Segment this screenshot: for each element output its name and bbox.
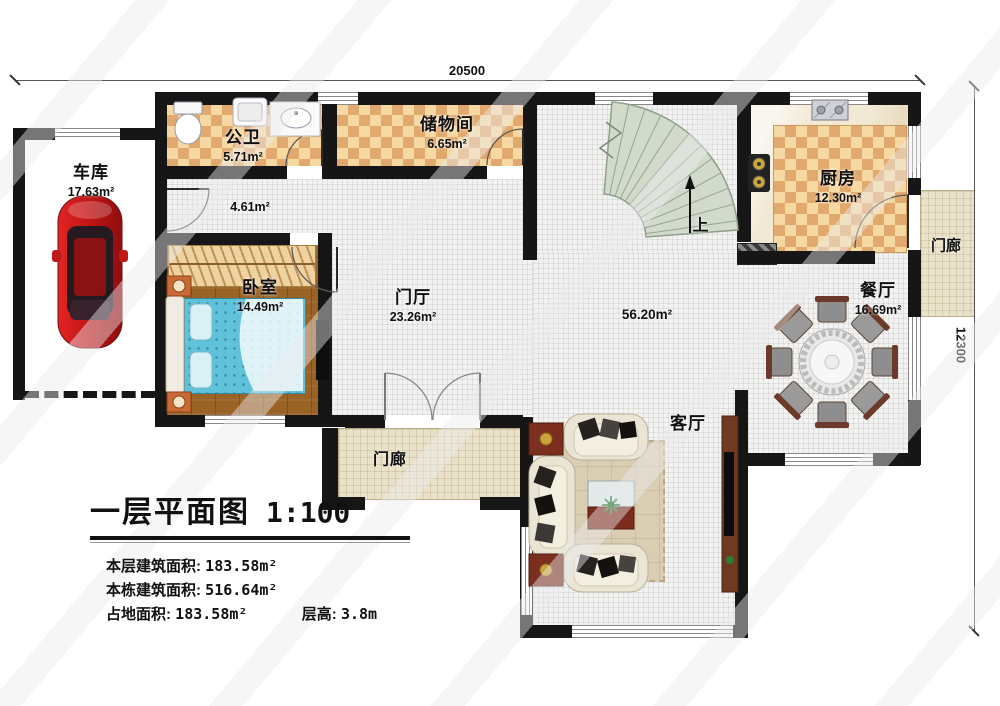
legend-stats: 本层建筑面积: 183.58m² 本栋建筑面积: 516.64m² 占地面积: … xyxy=(106,554,520,626)
dimension-top-value: 20500 xyxy=(449,63,485,78)
hall-area-label: 56.20m² xyxy=(622,306,672,324)
car xyxy=(52,196,128,348)
window-garage xyxy=(55,128,120,140)
window-kitchen-top xyxy=(790,92,868,105)
room-label-bathroom: 公卫 5.71m² xyxy=(223,127,263,165)
wall-garage-left xyxy=(13,128,25,400)
stat-row: 本栋建筑面积: 516.64m² xyxy=(106,578,520,602)
window-dining-right xyxy=(908,317,921,400)
living-rug xyxy=(561,440,665,582)
stat-row: 占地面积: 183.58m² 层高: 3.8m xyxy=(106,602,520,626)
room-label-living: 客厅 xyxy=(670,413,706,435)
window-bedroom xyxy=(205,415,285,427)
window-kitchen-right xyxy=(908,126,921,178)
stat-row: 本层建筑面积: 183.58m² xyxy=(106,554,520,578)
dimension-line-right xyxy=(974,86,975,632)
window-top-2 xyxy=(595,92,653,105)
plan-scale: 1:100 xyxy=(266,496,350,529)
wall-bath-bottom xyxy=(155,166,287,179)
title-underline xyxy=(90,536,410,540)
wall-living-right xyxy=(735,390,748,637)
window-living-left xyxy=(521,527,532,615)
wall-foyer-bottom-left xyxy=(345,415,385,428)
window-living-bottom xyxy=(572,625,733,638)
wall-storage-bottom xyxy=(322,166,487,179)
wall-hall-divider xyxy=(523,92,537,260)
wall-foyer-bottom-right xyxy=(480,415,523,428)
plan-title: 一层平面图 1:100 xyxy=(90,487,520,531)
room-label-garage: 车库 17.63m² xyxy=(68,162,115,200)
wall-bath-right xyxy=(322,104,337,166)
room-label-porch-bottom: 门廊 xyxy=(373,451,407,472)
wall-kitchen-left xyxy=(737,92,751,242)
plan-title-text: 一层平面图 xyxy=(90,487,250,531)
room-label-porch-right: 门廊 xyxy=(931,236,961,256)
garage-door xyxy=(25,391,155,398)
room-label-kitchen: 厨房 12.30m² xyxy=(815,168,862,206)
legend: 一层平面图 1:100 本层建筑面积: 183.58m² 本栋建筑面积: 516… xyxy=(90,487,520,626)
dimension-line-top xyxy=(15,80,920,81)
dimension-right-value: 12300 xyxy=(954,327,969,363)
room-label-bedroom: 卧室 14.49m² xyxy=(237,277,284,315)
wall-main-left xyxy=(155,92,167,417)
wall-bedroom-right xyxy=(318,233,332,415)
floor-plan-canvas: 车库 17.63m² 公卫 5.71m² 储物间 6.65m² 厨房 12.30… xyxy=(0,0,1000,706)
room-label-foyer: 门厅 23.26m² xyxy=(390,287,437,325)
stairs-up-label: 上 xyxy=(692,217,709,238)
corridor-area-label: 4.61m² xyxy=(230,199,270,215)
window-dining-bottom xyxy=(785,453,873,466)
room-label-dining: 餐厅 16.69m² xyxy=(855,280,902,318)
wall-kitchen-bottom xyxy=(737,251,875,264)
wall-bedroom-top xyxy=(167,233,290,245)
title-underline-2 xyxy=(90,542,410,543)
room-label-storage: 储物间 6.65m² xyxy=(420,114,474,152)
